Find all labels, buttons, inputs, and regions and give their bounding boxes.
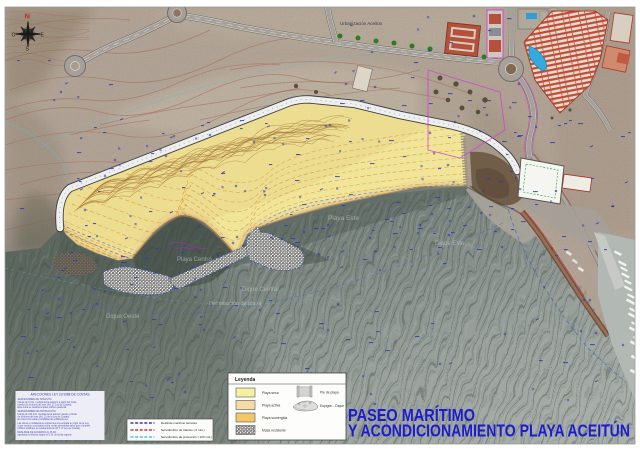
- svg-text:Servidumbre de tránsito ( 6 mt: Servidumbre de tránsito ( 6 mts.): [161, 428, 205, 432]
- svg-text:público justifique su mantenim: público justifique su mantenimiento (D.T…: [18, 426, 82, 430]
- svg-text:Servidumbre de protección ( 10: Servidumbre de protección ( 100 mts.): [161, 435, 212, 439]
- svg-text:En esta zona están prohibidas: En esta zona están prohibidas las edific…: [18, 418, 69, 421]
- svg-text:Playa sumergida: Playa sumergida: [262, 416, 287, 420]
- svg-text:Playa seca: Playa seca: [262, 391, 279, 395]
- svg-text:Dique Oeste: Dique Oeste: [106, 314, 140, 320]
- svg-text:Playa Este: Playa Este: [328, 215, 359, 222]
- svg-text:AFECCIONES LEY 22/1988 DE COST: AFECCIONES LEY 22/1988 DE COSTAS: [30, 393, 89, 397]
- svg-text:Delimitación de playa: Delimitación de playa: [209, 301, 262, 307]
- svg-text:Playa Centro: Playa Centro: [177, 257, 212, 263]
- svg-text:Playa activa: Playa activa: [262, 404, 280, 408]
- svg-text:Leyenda: Leyenda: [235, 377, 256, 383]
- svg-text:Y ACONDICIONAMIENTO PLAYA ACEI: Y ACONDICIONAMIENTO PLAYA ACEITÚN: [348, 420, 630, 441]
- svg-text:Urbanización Aceitún: Urbanización Aceitún: [340, 21, 383, 26]
- svg-text:Pie de playa: Pie de playa: [320, 391, 339, 395]
- svg-text:Espigón - Dique: Espigón - Dique: [320, 404, 344, 408]
- svg-text:Deslinde marítimo terrestre: Deslinde marítimo terrestre: [161, 421, 198, 425]
- svg-text:Dique Central: Dique Central: [242, 287, 279, 293]
- svg-text:Masa resistente: Masa resistente: [262, 429, 286, 433]
- svg-text:N: N: [25, 12, 30, 21]
- svg-text:aprobado a efectos según la O.: aprobado a efectos según la O.M. de fech…: [18, 433, 73, 436]
- svg-text:Dique Este: Dique Este: [435, 241, 465, 247]
- svg-text:O: O: [12, 33, 16, 39]
- svg-text:Esta zona se destina al paso p: Esta zona se destina al paso público pea…: [18, 406, 68, 409]
